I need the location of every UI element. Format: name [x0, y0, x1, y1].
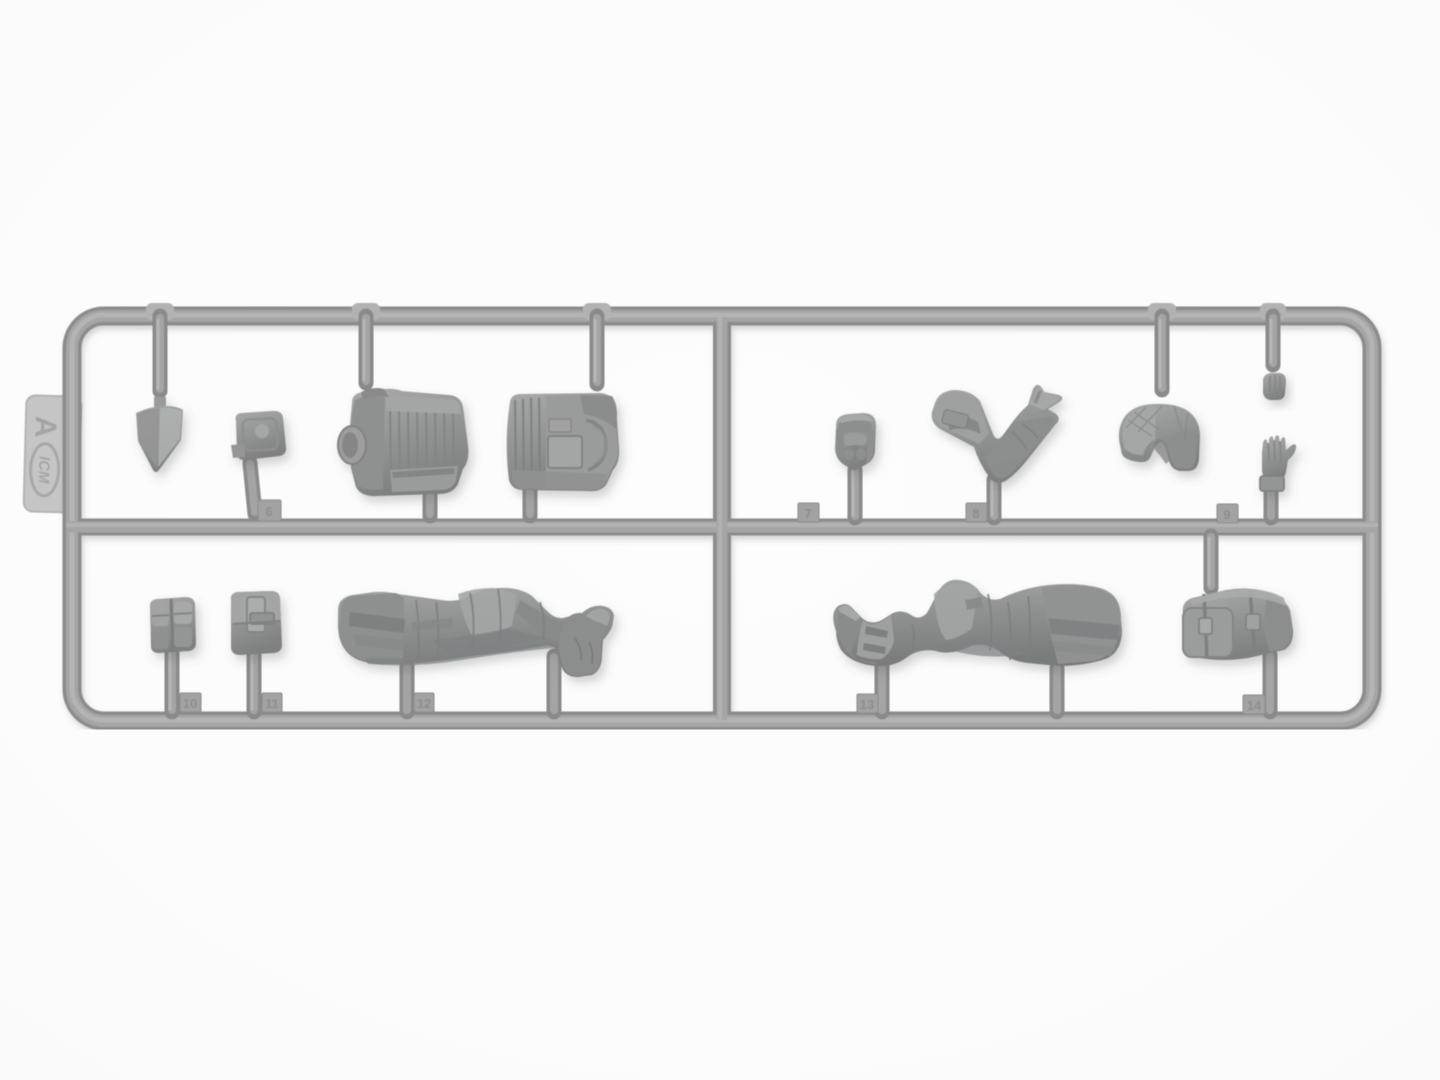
svg-text:10: 10 — [183, 696, 197, 711]
svg-text:12: 12 — [417, 696, 431, 711]
svg-text:ICM: ICM — [35, 456, 53, 484]
svg-text:14: 14 — [1247, 698, 1262, 713]
svg-text:13: 13 — [860, 697, 874, 712]
svg-text:9: 9 — [1223, 507, 1230, 522]
svg-text:7: 7 — [804, 506, 811, 521]
svg-text:A: A — [28, 416, 62, 439]
svg-text:6: 6 — [265, 504, 272, 519]
svg-text:11: 11 — [265, 696, 279, 711]
svg-text:8: 8 — [972, 506, 979, 521]
